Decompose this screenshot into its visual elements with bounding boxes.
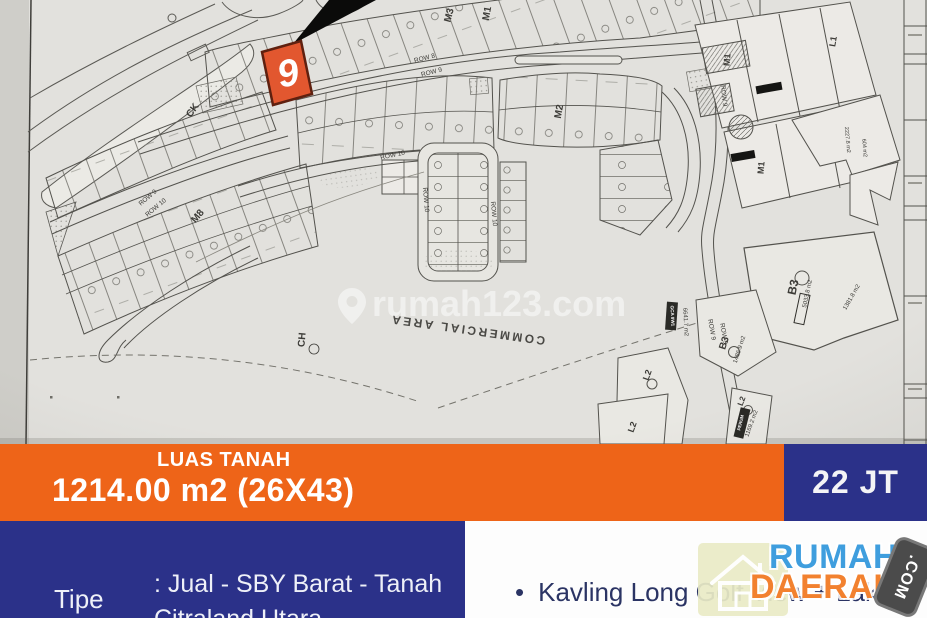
map-label: L1	[827, 35, 839, 47]
logo-com-text: .COM	[889, 552, 923, 601]
price-badge: 22 JT	[784, 444, 927, 521]
land-area-label: LUAS TANAH	[157, 449, 291, 472]
map-label: M1	[721, 53, 732, 66]
listing-flyer: ROW 8ROW 9ROW 9ROW 10ROW 10ROW 10ROW 10R…	[0, 0, 927, 618]
type-value-line2: Citraland Utara	[154, 602, 442, 618]
brand-logo: RUMAH DAERAH .COM	[693, 540, 927, 618]
bullet-icon: •	[515, 574, 524, 618]
type-label: Tipe	[54, 584, 104, 615]
type-value-line1: : Jual - SBY Barat - Tanah	[154, 567, 442, 602]
price-value: 22 JT	[812, 464, 899, 501]
map-label: M1	[755, 161, 766, 174]
map-left-margin	[0, 0, 29, 444]
watermark-text: rumah123.com	[372, 283, 626, 324]
site-plan-map: ROW 8ROW 9ROW 9ROW 10ROW 10ROW 10ROW 10R…	[0, 0, 927, 444]
land-area-banner: LUAS TANAH 1214.00 m2 (26X43)	[0, 444, 784, 521]
type-value: : Jual - SBY Barat - Tanah Citraland Uta…	[154, 567, 442, 618]
type-panel: Tipe : Jual - SBY Barat - Tanah Citralan…	[0, 521, 465, 618]
rumah123-watermark: rumah123.com	[338, 283, 626, 324]
map-label: CH	[296, 332, 308, 347]
land-area-value: 1214.00 m2 (26X43)	[52, 472, 355, 509]
